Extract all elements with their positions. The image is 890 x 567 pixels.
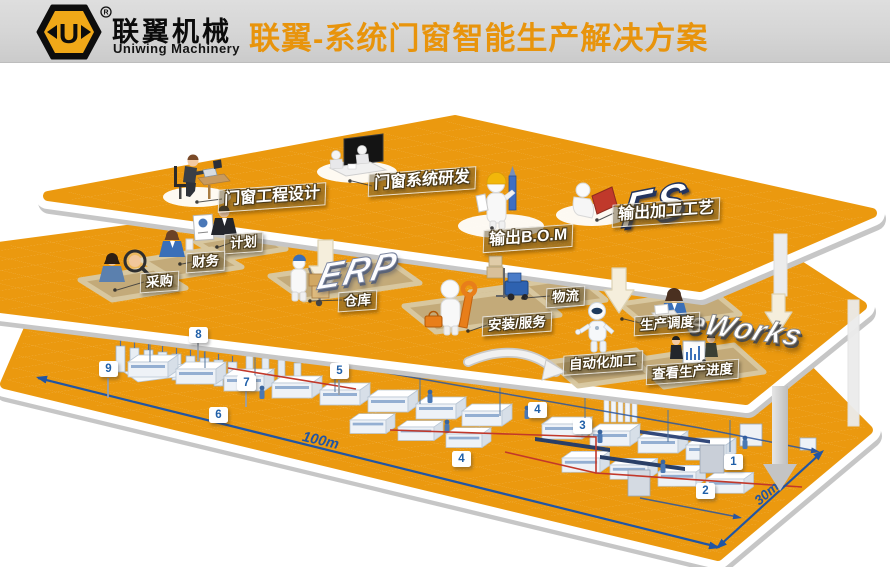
station-badge-6: 6 [209, 407, 228, 423]
label-warehouse: 仓库 [338, 290, 378, 312]
station-badge-3: 3 [573, 418, 592, 434]
page-title: 联翼-系统门窗智能生产解决方案 [249, 13, 708, 58]
isometric-scene [0, 0, 890, 567]
station-badge-5: 5 [330, 363, 349, 379]
label-logistics: 物流 [546, 286, 586, 308]
label-plan: 计划 [224, 232, 264, 254]
label-purchase: 采购 [140, 271, 180, 293]
down-pillar-arrow [772, 386, 788, 466]
brand-name-en: Uniwing Machinery [113, 41, 240, 56]
svg-text:U: U [59, 18, 79, 49]
label-finance: 财务 [186, 251, 226, 273]
station-badge-1: 1 [724, 454, 743, 470]
header-bar: U R 联翼机械 Uniwing Machinery 联翼-系统门窗智能生产解决… [0, 0, 890, 63]
station-badge-2: 2 [696, 483, 715, 499]
station-badge-4b: 4 [452, 451, 471, 467]
station-badge-4a: 4 [528, 402, 547, 418]
page: U R 联翼机械 Uniwing Machinery 联翼-系统门窗智能生产解决… [0, 0, 890, 567]
registered-mark: R [103, 10, 108, 17]
station-badge-8: 8 [189, 327, 208, 343]
station-badge-9: 9 [99, 361, 118, 377]
station-badge-7: 7 [237, 375, 256, 391]
